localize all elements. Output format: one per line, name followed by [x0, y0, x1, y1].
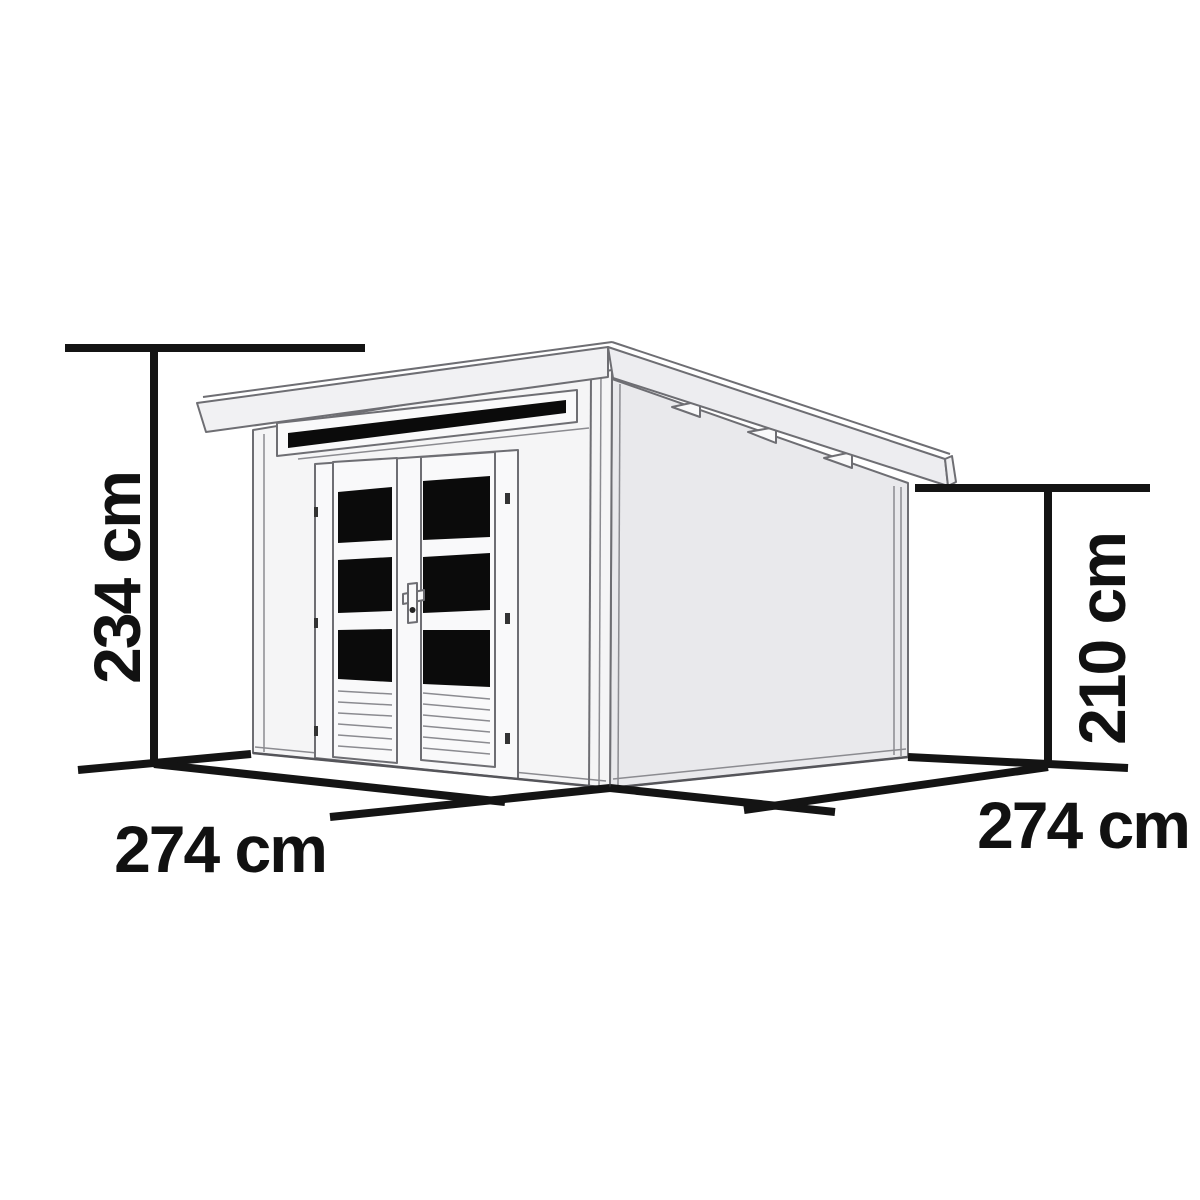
dimension-label-width-front: 274 cm [114, 812, 326, 886]
dimension-label-height-left: 234 cm [80, 472, 154, 684]
door-left-glass-bottom [338, 629, 392, 682]
shed-dimension-diagram: 234 cm 210 cm 274 cm 274 cm [0, 0, 1200, 1200]
dimension-label-depth-side: 274 cm [977, 788, 1189, 862]
door-right-glass-middle [423, 553, 490, 613]
dim-ext-near-corner-left [330, 788, 610, 817]
shed-dimension-diagram-page: 234 cm 210 cm 274 cm 274 cm [0, 0, 1200, 1200]
dim-ext-back-corner [908, 757, 1128, 768]
shed-illustration [197, 342, 956, 788]
door-right-glass-top [423, 476, 490, 540]
roof-right-end-cap [945, 456, 956, 486]
dimension-label-height-right: 210 cm [1065, 533, 1139, 745]
door-right-glass-bottom [423, 630, 490, 687]
door-left-glass-middle [338, 557, 392, 613]
door-left-glass-top [338, 487, 392, 543]
